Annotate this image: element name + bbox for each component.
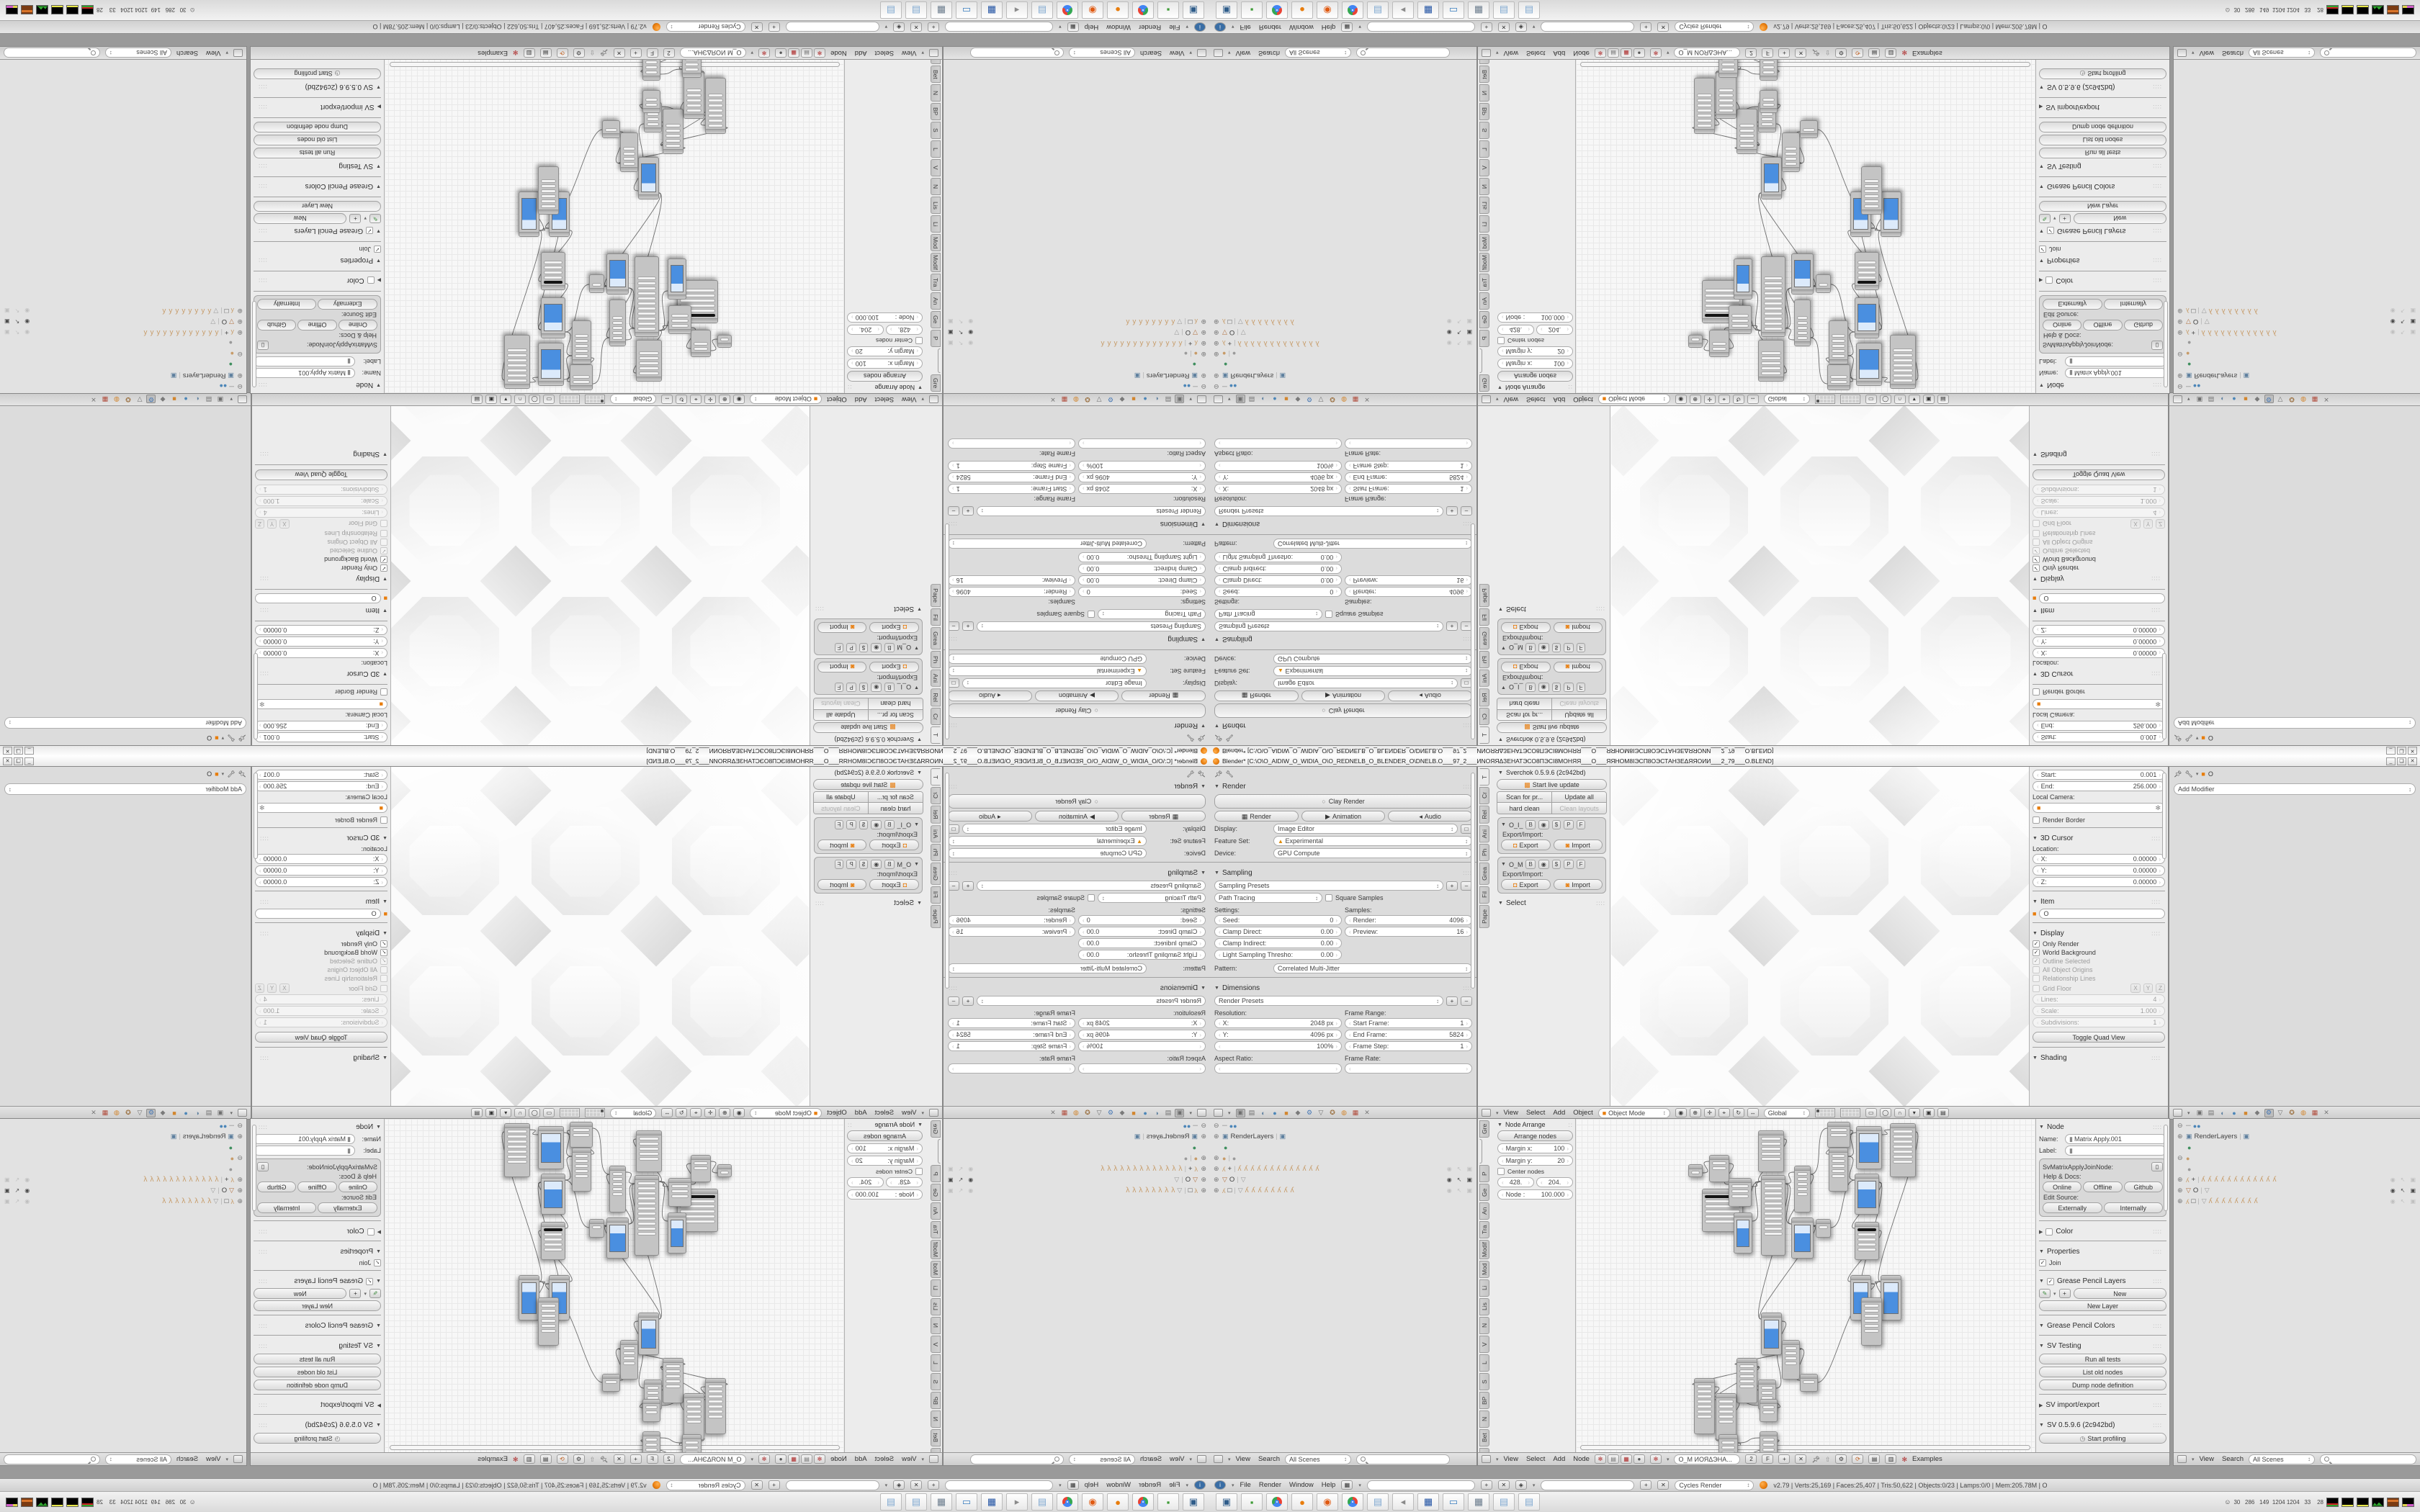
node-field[interactable] (612, 1187, 623, 1191)
node-field[interactable] (1691, 1171, 1700, 1174)
arrange-width-field[interactable]: 428. (886, 325, 923, 335)
cursor-icon[interactable]: ↖ (15, 329, 20, 336)
properties-tab-icon-10[interactable]: ▦ (100, 395, 109, 404)
outliner-item-label[interactable]: + (225, 1176, 229, 1184)
display-mode-dropdown[interactable]: All Scenes (105, 48, 171, 58)
menu-view[interactable]: View (1504, 395, 1518, 403)
node-field[interactable] (1762, 1438, 1775, 1441)
orientation-dropdown[interactable]: Global (610, 1108, 656, 1118)
add-scene-button[interactable]: + (1640, 22, 1652, 32)
render-samples-field[interactable]: Render:4096 (948, 587, 1075, 597)
add-screen-button[interactable]: + (1481, 1480, 1492, 1490)
taskbar-chrome-icon[interactable] (1132, 1493, 1154, 1511)
cursor-y-field[interactable]: Y:0.00000 (2033, 865, 2165, 876)
minimize-button[interactable]: _ (24, 747, 34, 755)
node-field[interactable] (1797, 326, 1808, 330)
node-field[interactable] (639, 1152, 659, 1156)
editor-type-icon[interactable] (1482, 1455, 1491, 1463)
toolshelf-tab-Grea[interactable]: Grea (1479, 863, 1489, 885)
graph-node-19[interactable] (1761, 157, 1782, 199)
node-field[interactable] (1762, 98, 1775, 102)
graph-node-15[interactable] (1855, 1222, 1879, 1260)
new-datablock-button[interactable]: + (1778, 1454, 1790, 1464)
outliner-item-label[interactable]: RenderLayers (183, 1133, 226, 1140)
fake-user-button[interactable]: F (835, 683, 844, 692)
parent-tree-icon[interactable]: ⇧ (590, 1456, 596, 1463)
viewport-snap-icon-3[interactable]: ▾ (500, 395, 511, 404)
eye-icon[interactable]: ◉ (2390, 329, 2396, 336)
node-field[interactable] (1697, 124, 1712, 127)
graph-node-17[interactable] (1881, 1275, 1901, 1320)
viewport-tool-icon-0[interactable]: ◉ (1675, 395, 1687, 404)
node-field[interactable] (507, 359, 527, 362)
node-field[interactable] (671, 1189, 689, 1193)
menu-view[interactable]: View (1504, 1109, 1518, 1117)
expand-icon[interactable]: ⊕ (1214, 318, 1220, 325)
eye-icon[interactable]: ◉ (1447, 318, 1452, 325)
graph-node-4[interactable] (1734, 1212, 1752, 1254)
node-field[interactable] (671, 324, 689, 328)
import-button[interactable]: ◙Import (817, 879, 867, 890)
node-field[interactable] (1797, 1177, 1808, 1181)
shading-panel-title[interactable]: Shading (353, 450, 380, 458)
layers-grid[interactable] (1840, 1108, 1860, 1117)
node-field[interactable] (575, 1169, 588, 1173)
layer-cell[interactable] (572, 1110, 575, 1112)
close-button[interactable]: ✕ (3, 757, 12, 765)
grid-floor-checkbox[interactable] (2033, 985, 2040, 992)
node-field[interactable] (1762, 66, 1775, 69)
render-presets-dropdown[interactable]: Render Presets (1214, 506, 1443, 516)
scene-field[interactable] (1541, 22, 1634, 32)
visibility-toggles[interactable]: ◉↖▣ (2390, 307, 2416, 314)
node-field[interactable] (694, 1166, 708, 1170)
node-field[interactable] (708, 1405, 723, 1408)
taskbar-fl64-save-icon[interactable]: ▦ (1417, 1493, 1439, 1511)
new-datablock-button[interactable]: + (630, 1454, 642, 1464)
render-engine-dropdown[interactable]: Cycles Render (1675, 22, 1754, 32)
layers-grid[interactable] (560, 1108, 580, 1117)
node-field[interactable] (685, 1441, 699, 1444)
grid-x-button[interactable]: X (2130, 519, 2140, 528)
node-field[interactable] (1731, 1189, 1749, 1193)
scan-for-props-button[interactable]: Scan for pr... (1497, 792, 1552, 803)
unlink-datablock-button[interactable]: ✕ (1795, 1454, 1806, 1464)
properties-tab-icon-1[interactable]: ▤ (204, 395, 213, 404)
node-field[interactable] (665, 129, 681, 132)
toolshelf-tab-Bet[interactable]: Bet (931, 1429, 941, 1446)
layer-cell[interactable] (1852, 1113, 1855, 1116)
node-field[interactable] (1762, 1410, 1775, 1414)
node-field[interactable] (686, 1415, 702, 1418)
add-preset-button[interactable]: + (1446, 996, 1458, 1006)
integrator-dropdown[interactable]: Path Tracing (1098, 609, 1206, 619)
visibility-toggles[interactable]: ◉↖▣ (1447, 340, 1472, 346)
tree-type-icon-0[interactable]: ✻ (814, 1454, 825, 1464)
graph-node-9[interactable] (589, 274, 604, 293)
dump-node-definition-button[interactable]: Dump node definition (2039, 122, 2166, 132)
graph-node-5[interactable] (1758, 340, 1784, 382)
outliner-item-label[interactable]: RenderLayers (2195, 372, 2238, 379)
menu-help[interactable]: Help (1322, 23, 1336, 31)
node-field[interactable] (637, 322, 656, 325)
toolshelf-tab-Cr[interactable]: Cr (931, 787, 941, 804)
mode-dropdown[interactable]: ■Object Mode (1598, 1108, 1670, 1118)
new-button[interactable]: New (2074, 1288, 2166, 1299)
node-label-field[interactable]: ▮ (2065, 356, 2166, 366)
bake-button[interactable]: B (1525, 643, 1535, 652)
menu-select[interactable]: Select (875, 1455, 894, 1463)
display-mode-dropdown[interactable]: All Scenes (105, 1454, 171, 1464)
fake-user-button[interactable]: F (647, 48, 658, 58)
integrator-dropdown[interactable]: Path Tracing (1214, 893, 1322, 903)
hard-clean-button[interactable]: hard clean (1497, 803, 1552, 814)
camera-icon[interactable]: ▣ (2410, 329, 2416, 336)
eye-icon[interactable]: ◉ (2390, 1187, 2396, 1194)
node-field[interactable] (1721, 63, 1735, 66)
toolshelf-tab-V[interactable]: V (1479, 1336, 1489, 1353)
layout-icon[interactable]: ▤ (1868, 48, 1880, 58)
panel-title-dimensions[interactable]: Dimensions (1222, 984, 1260, 992)
outliner-row[interactable]: ⊖─●● (1210, 381, 1476, 392)
scene-icon[interactable]: ◈ (893, 22, 905, 32)
menu-select[interactable]: Select (1526, 395, 1545, 403)
graph-node-3[interactable] (668, 1178, 691, 1207)
graph-node-9[interactable] (1816, 274, 1831, 293)
pencil-icon[interactable]: ✎ (2039, 214, 2051, 223)
gpu-meter[interactable] (6, 6, 18, 15)
menu-view[interactable]: View (2200, 49, 2214, 57)
eye-icon[interactable]: ◉ (24, 1198, 30, 1205)
outliner-row[interactable]: ⊕▣RenderLayers|▣ (944, 370, 1210, 381)
node-tree-datablock[interactable]: O_M ИОЯΔЭНА... (1674, 1454, 1740, 1464)
hard-clean-button[interactable]: hard clean (1497, 698, 1552, 709)
viewport-snap-icon-3[interactable]: ▾ (1909, 1108, 1920, 1117)
taskbar-blender-icon[interactable]: ● (1107, 1, 1129, 19)
menu-add[interactable]: Add (1553, 1455, 1565, 1463)
properties-tab-icon-9[interactable]: ◍ (112, 1109, 121, 1117)
node-field[interactable] (1864, 1314, 1879, 1318)
node-field[interactable] (1718, 1415, 1734, 1418)
menu-examples[interactable]: Examples (1912, 1455, 1942, 1463)
node-field[interactable] (639, 351, 659, 355)
toolshelf-tab-Modif[interactable]: Modif (931, 253, 941, 272)
viewport-snap-icon-1[interactable]: ◯ (1880, 1108, 1891, 1117)
panel-title-render[interactable]: Render (1222, 721, 1246, 729)
outliner-row[interactable]: ⊕ʎ□|▽ʎʎʎʎʎʎʎʎ◉↖▣ (2174, 1196, 2420, 1207)
res-y-field[interactable]: Y:4096 px (1214, 472, 1342, 482)
taskbar-notepad-icon[interactable]: ▤ (1493, 1493, 1515, 1511)
layer-cell[interactable] (1820, 400, 1823, 402)
clamp-indirect-field[interactable]: Clamp Indirect:0.00 (1078, 938, 1206, 948)
tool-icon[interactable]: 🔧︎ (1225, 770, 1233, 778)
node-field[interactable] (1739, 1364, 1754, 1368)
node-field[interactable] (1761, 1386, 1773, 1390)
graph-node-13[interactable] (1890, 335, 1916, 389)
info-icon[interactable]: i (1194, 22, 1206, 32)
viewport-snap-icon-1[interactable]: ◯ (529, 1108, 540, 1117)
graph-node-21[interactable] (602, 120, 620, 138)
toolshelf-tab-P[interactable]: P (1479, 330, 1489, 347)
render-border-checkbox[interactable] (2033, 816, 2040, 824)
layer-cell[interactable] (561, 1113, 564, 1116)
frame-step-field[interactable]: Frame Step:1 (948, 461, 1075, 471)
start-frame-field[interactable]: Start Frame:1 (1345, 484, 1472, 494)
outliner-row[interactable]: ⊕●|● (944, 348, 1210, 359)
sverchok-panel-title[interactable]: Sverchok 0.5.9.6 (2c942bd) (834, 769, 914, 776)
outliner-row[interactable]: ⊕ʎ+|ʎʎʎʎʎʎʎʎʎʎʎʎ◉↖▣ (2174, 327, 2420, 338)
panel-title-render[interactable]: Render (1222, 783, 1246, 791)
add-screen-button[interactable]: + (928, 1480, 939, 1490)
res-pct-field[interactable]: 100% (1078, 461, 1206, 471)
cursor-icon[interactable]: ↖ (959, 1176, 964, 1183)
cursor-icon[interactable]: ↖ (1457, 340, 1462, 346)
node-field[interactable] (685, 68, 699, 71)
layer-cell[interactable] (1831, 396, 1834, 399)
viewport-tool-icon-3[interactable]: ⌖ (1718, 1108, 1730, 1117)
node-field[interactable] (637, 1207, 656, 1210)
properties-tab-icon-6[interactable]: ⚙ (146, 1109, 156, 1117)
clamp-direct-field[interactable]: Clamp Direct:0.00 (1214, 927, 1342, 937)
display-mode-dropdown[interactable]: All Scenes (2249, 48, 2315, 58)
taskbar-fl64-save-icon[interactable]: ▦ (981, 1493, 1003, 1511)
graph-node-3[interactable] (1729, 1178, 1752, 1207)
viewport-tool-icon-4[interactable]: ↻ (1733, 1108, 1744, 1117)
graph-node-5[interactable] (636, 340, 662, 382)
node-field[interactable] (1857, 1248, 1876, 1251)
toolshelf-tab-S[interactable]: S (1479, 1373, 1489, 1390)
add-preset-button[interactable]: + (1446, 622, 1458, 631)
properties-tab-icon-3[interactable]: ● (2230, 395, 2239, 404)
animate-icon[interactable]: $ (859, 643, 868, 652)
taskbar-screen-capture-icon[interactable]: ▭ (1443, 1493, 1464, 1511)
export-button[interactable]: ◘Export (1501, 622, 1551, 633)
frame-step-field[interactable]: Frame Step:1 (948, 1041, 1075, 1051)
shading-panel-title[interactable]: Shading (353, 1054, 380, 1062)
menu-window[interactable]: Window (1289, 23, 1314, 31)
layers-grid[interactable] (1815, 1108, 1835, 1117)
list-old-nodes-button[interactable]: List old nodes (2039, 1367, 2166, 1377)
color-panel-title[interactable]: Color (347, 276, 364, 284)
graph-node-11[interactable] (572, 320, 591, 364)
grid-x-button[interactable]: X (279, 519, 289, 528)
node-field[interactable] (612, 316, 623, 320)
tool-icon[interactable]: 🔧︎ (2184, 734, 2192, 742)
cursor-icon[interactable]: ↖ (2401, 318, 2406, 325)
node-field[interactable] (1764, 322, 1783, 325)
layer-cell[interactable] (597, 1110, 600, 1112)
outliner-row[interactable]: ⊕ʎ+|ʎʎʎʎʎʎʎʎʎʎʎʎʎ◉↖▣ (1210, 1164, 1476, 1174)
node-field[interactable] (1721, 1446, 1735, 1449)
taskbar-speaker-icon[interactable]: ◂ (1392, 1493, 1414, 1511)
visibility-toggles[interactable]: ◉↖▣ (948, 1176, 973, 1183)
editor-type-icon[interactable] (1214, 1109, 1223, 1117)
taskbar-chrome-icon[interactable] (1057, 1493, 1078, 1511)
menu-view[interactable]: View (902, 395, 916, 403)
layer-cell[interactable] (1852, 1110, 1855, 1112)
node-field[interactable] (1697, 1400, 1712, 1403)
toolshelf-tab-T[interactable]: T (1479, 726, 1489, 744)
arrange-width-field[interactable]: 428. (1497, 1177, 1534, 1187)
node-field[interactable] (612, 1192, 623, 1196)
node-label-field[interactable]: ▮ (254, 1146, 355, 1156)
layer-cell[interactable] (1827, 1110, 1830, 1112)
visibility-toggles[interactable]: ◉↖▣ (1447, 318, 1472, 325)
graph-node-13[interactable] (504, 1123, 530, 1177)
sampling-presets-dropdown[interactable]: Sampling Presets (977, 881, 1206, 891)
clip-start-field[interactable]: Start:0.001 (2033, 770, 2165, 780)
cpu-meter[interactable] (2341, 1498, 2354, 1507)
clamp-direct-field[interactable]: Clamp Direct:0.00 (1214, 575, 1342, 585)
node-field[interactable] (1761, 1391, 1773, 1395)
editor-type-icon[interactable] (929, 1455, 938, 1463)
arrange-width-field[interactable]: 428. (1497, 325, 1534, 335)
sv-import-export-panel-title[interactable]: SV import/export (321, 1401, 374, 1409)
feature-set-dropdown[interactable]: ▲ Experimental (1273, 836, 1472, 846)
graph-node-28[interactable] (642, 60, 660, 81)
outliner-item-label[interactable]: O (1229, 328, 1234, 336)
bug-icon[interactable]: ⚙ (573, 1454, 585, 1464)
outliner-row[interactable]: ⊕▣RenderLayers|▣ (2174, 1131, 2420, 1142)
layer-cell[interactable] (601, 400, 604, 402)
toolshelf-tab-Modif[interactable]: Modif (1479, 1240, 1489, 1259)
margin-x-field[interactable]: Margin x:100 (1497, 359, 1573, 369)
tool-icon[interactable]: 🔧︎ (1186, 734, 1194, 742)
menu-add[interactable]: Add (855, 395, 867, 403)
grid-lines-field[interactable]: Lines:4 (2033, 508, 2165, 518)
node-field[interactable] (1764, 1207, 1783, 1210)
properties-tab-icon-5[interactable]: ◆ (1294, 1109, 1303, 1117)
graph-node-12[interactable] (1856, 343, 1882, 386)
expand-icon[interactable]: ⊕ (2177, 1187, 2184, 1194)
graph-node-18[interactable] (1861, 1297, 1882, 1346)
node-field[interactable] (637, 1187, 656, 1190)
graph-node-9[interactable] (1816, 1219, 1831, 1238)
node-field[interactable] (1718, 89, 1734, 92)
cursor-z-field[interactable]: Z:0.00000 (2033, 625, 2165, 635)
copy-icon[interactable]: ▯ (257, 1162, 269, 1171)
properties-tab-icon-4[interactable]: ■ (2241, 395, 2251, 404)
import-button[interactable]: ◙Import (817, 840, 867, 850)
graph-node-6[interactable] (1761, 1175, 1785, 1256)
animate-icon[interactable]: $ (1552, 820, 1561, 829)
camera-icon[interactable]: ▣ (4, 307, 10, 314)
node-field[interactable] (645, 60, 658, 64)
scrollbar[interactable] (254, 653, 258, 739)
copy-icon[interactable]: ▯ (257, 341, 269, 350)
render-presets-dropdown[interactable]: Render Presets (1214, 996, 1443, 1006)
node-field[interactable] (1739, 1380, 1754, 1383)
outliner-item-label[interactable]: + (2192, 328, 2196, 336)
toolshelf-tab-V[interactable]: V (931, 1336, 941, 1353)
properties-tab-icon-3[interactable]: ● (1140, 395, 1149, 404)
node-field[interactable] (645, 1438, 658, 1441)
expand-icon[interactable]: ⊕ (2177, 318, 2184, 325)
viewport-3d[interactable]: TCrRelAniPhGreaFilPape ▼Sverchok 0.5.9.6… (1478, 767, 2168, 1119)
node-field[interactable] (1764, 1212, 1783, 1215)
graph-node-17[interactable] (519, 192, 539, 237)
node-field[interactable] (1832, 1164, 1845, 1168)
cursor-panel-title[interactable]: 3D Cursor (2040, 834, 2074, 842)
viewport-tool-icon-5[interactable]: ↔ (661, 1108, 673, 1117)
visibility-toggles[interactable]: ◉↖▣ (2390, 1176, 2416, 1183)
node-field[interactable] (685, 1446, 699, 1449)
restore-button[interactable]: ❏ (14, 757, 23, 765)
bug-icon[interactable]: ⚙ (573, 48, 585, 58)
editor-type-icon[interactable] (1214, 49, 1223, 57)
node-field[interactable] (1819, 1225, 1828, 1229)
update-icon[interactable]: ⟳ (1852, 48, 1863, 58)
graph-node-27[interactable] (1718, 60, 1738, 78)
join-checkbox[interactable]: ✓ (374, 246, 381, 253)
outline-selected-checkbox[interactable]: ✓ (2033, 547, 2040, 554)
cursor-icon[interactable]: ↖ (1457, 1187, 1462, 1194)
taskbar-calculator-icon[interactable]: ▦ (1468, 1493, 1489, 1511)
node-field[interactable] (671, 1194, 689, 1198)
editor-type-icon[interactable] (2177, 49, 2187, 57)
node-field[interactable] (1697, 1415, 1712, 1418)
node-field[interactable] (1764, 1222, 1783, 1225)
node-field[interactable] (612, 1177, 623, 1181)
properties-panel-title[interactable]: Properties (340, 256, 373, 264)
res-y-field[interactable]: Y:4096 px (1078, 1030, 1206, 1040)
node-field[interactable] (1893, 1140, 1913, 1143)
display-panel-title[interactable]: Display (2040, 930, 2064, 937)
display-dropdown[interactable]: Image Editor (1273, 824, 1458, 834)
toolshelf-tab-Ph[interactable]: Ph (1479, 651, 1489, 668)
node-field[interactable] (708, 1385, 723, 1388)
graph-node-15[interactable] (541, 252, 565, 290)
toolshelf-tab-Ph[interactable]: Ph (931, 651, 941, 668)
camera-icon[interactable]: ▣ (2410, 1187, 2416, 1194)
outliner-item-label[interactable]: RenderLayers (183, 372, 226, 379)
update-icon[interactable]: ⟳ (557, 48, 568, 58)
node-field[interactable] (1764, 1187, 1783, 1190)
editor-type-icon[interactable] (1214, 395, 1223, 403)
list-old-nodes-button[interactable]: List old nodes (254, 135, 381, 145)
outliner-row[interactable]: ⊕▣RenderLayers|▣ (0, 1131, 246, 1142)
all-object-origins-checkbox[interactable] (2033, 539, 2040, 546)
outliner-item-label[interactable]: O (1186, 1176, 1191, 1184)
viewport-tool-icon-0[interactable]: ◉ (1675, 1108, 1687, 1117)
render-engine-dropdown[interactable]: Cycles Render (1675, 1480, 1754, 1490)
graph-node-19[interactable] (638, 157, 659, 199)
clay-render-button[interactable]: ○Clay Render (948, 794, 1206, 809)
new-datablock-button[interactable]: + (630, 48, 642, 58)
layout-icon[interactable]: ▤ (1868, 1454, 1880, 1464)
toolshelf-tab-Ge[interactable]: Ge (1479, 1184, 1489, 1201)
viewport-3d[interactable]: TCrRelAniPhGreaFilPape ▼Sverchok 0.5.9.6… (1478, 393, 2168, 745)
outliner-row[interactable]: ● (1210, 1142, 1476, 1153)
add-screen-button[interactable]: + (1481, 22, 1492, 32)
outliner-row[interactable]: ● (0, 1164, 246, 1174)
render-border-checkbox[interactable] (380, 816, 387, 824)
node-panel-title[interactable]: Node (356, 1123, 373, 1131)
properties-tab-icon-2[interactable]: ◐ (192, 395, 202, 404)
outliner-row[interactable]: ● (2174, 338, 2420, 348)
graph-node-25[interactable] (684, 1393, 704, 1440)
node-field[interactable] (665, 1369, 681, 1373)
eye-icon[interactable]: ◉ (24, 1176, 30, 1183)
layout-icon[interactable]: ▤ (540, 48, 552, 58)
panel-title-render[interactable]: Render (1174, 783, 1198, 791)
parent-tree-icon[interactable]: ⇧ (1825, 50, 1831, 57)
start-live-update-button[interactable]: ▩Start live update (1497, 722, 1607, 733)
cursor-y-field[interactable]: Y:0.00000 (255, 865, 387, 876)
layer-cell[interactable] (590, 1113, 593, 1116)
render-button[interactable]: ▦Render (1121, 811, 1206, 822)
node-field[interactable] (647, 122, 659, 126)
